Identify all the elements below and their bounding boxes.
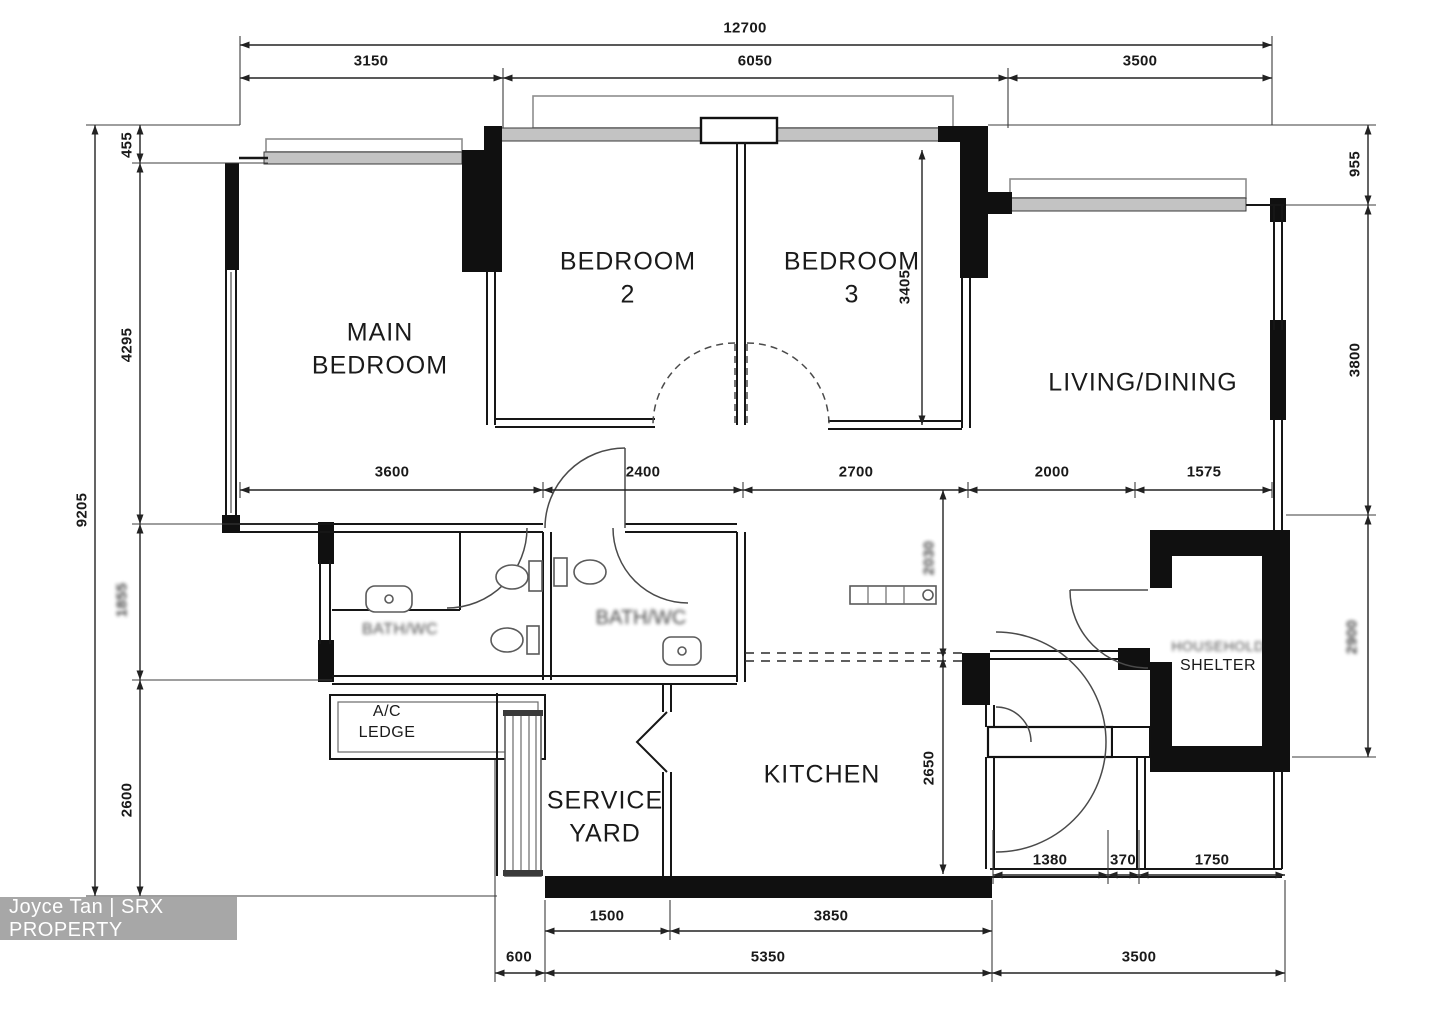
room-main-bedroom-line1: MAIN	[347, 321, 414, 346]
dim-left-seg3: 1855	[115, 583, 130, 618]
dim-top-seg2: 6050	[738, 54, 773, 69]
room-bath2: BATH/WC	[596, 608, 687, 628]
room-shelter-line2: SHELTER	[1180, 658, 1256, 674]
dim-left-seg4: 2600	[120, 783, 135, 818]
room-service-yard-line1: SERVICE	[547, 789, 663, 814]
room-service-yard-line2: YARD	[569, 822, 641, 847]
dim-right-seg2: 3800	[1348, 343, 1363, 378]
dim-top-overall: 12700	[723, 21, 766, 36]
dim-mid-1: 3600	[375, 465, 410, 480]
room-ac-ledge-line1: A/C	[373, 704, 401, 720]
room-bedroom2-line1: BEDROOM	[560, 250, 696, 275]
dim-left-overall: 9205	[75, 493, 90, 528]
room-bedroom3-line2: 3	[845, 283, 860, 308]
room-bath1: BATH/WC	[362, 622, 438, 638]
dim-entrance-1: 1380	[1033, 853, 1068, 868]
room-living-dining: LIVING/DINING	[1048, 371, 1237, 396]
dim-mid-4: 2000	[1035, 465, 1070, 480]
watermark-text: Joyce Tan | SRX PROPERTY	[9, 896, 237, 942]
floorplan-drawing	[0, 0, 1440, 1032]
dim-bottom-5350: 5350	[751, 950, 786, 965]
room-shelter-line1: HOUSEHOLD	[1171, 639, 1264, 653]
dim-top-seg1: 3150	[354, 54, 389, 69]
dim-mid-3: 2700	[839, 465, 874, 480]
dim-bottom-3500: 3500	[1122, 950, 1157, 965]
dim-top-seg3: 3500	[1123, 54, 1158, 69]
room-ac-ledge-line2: LEDGE	[359, 725, 416, 741]
dim-mid-5: 1575	[1187, 465, 1222, 480]
room-main-bedroom-line2: BEDROOM	[312, 354, 448, 379]
watermark-bar: Joyce Tan | SRX PROPERTY	[0, 897, 237, 940]
floorplan: 12700 3150 6050 3500 9205 455 4295 1855 …	[0, 0, 1440, 1032]
room-kitchen: KITCHEN	[764, 763, 881, 788]
dim-kitchen-height: 2650	[922, 751, 937, 786]
dim-entrance-3: 1750	[1195, 853, 1230, 868]
dim-bottom-1500: 1500	[590, 909, 625, 924]
dim-bottom-600: 600	[506, 950, 532, 965]
room-bedroom3-line1: BEDROOM	[784, 250, 920, 275]
dim-hall-height: 2030	[922, 541, 937, 576]
dim-left-seg1: 455	[120, 132, 135, 158]
dim-mid-2: 2400	[626, 465, 661, 480]
dim-bottom-3850: 3850	[814, 909, 849, 924]
dim-left-seg2: 4295	[120, 328, 135, 363]
dim-entrance-2: 370	[1110, 853, 1136, 868]
dim-right-seg3: 2900	[1345, 620, 1360, 655]
dim-right-seg1: 955	[1348, 151, 1363, 177]
room-bedroom2-line2: 2	[621, 283, 636, 308]
